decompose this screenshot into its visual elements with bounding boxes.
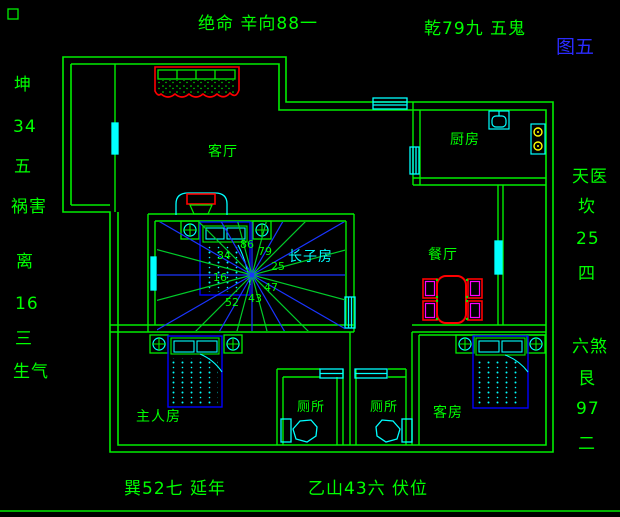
annotation-right-25: 25 xyxy=(576,231,600,248)
room-label-living: 客厅 xyxy=(208,145,238,159)
annotation-right-si: 四 xyxy=(578,266,596,283)
annotation-right-tianyi: 天医 xyxy=(572,169,608,186)
annotation-bottom-left: 巽52七 延年 xyxy=(124,481,226,498)
annotation-left-shengqi: 生气 xyxy=(13,364,49,381)
bed-master xyxy=(168,336,222,407)
flying-star-number: 16 xyxy=(213,272,227,283)
room-label-kitchen: 厨房 xyxy=(450,133,480,147)
flying-star-number: 34 xyxy=(217,250,231,261)
annotation-left-san: 三 xyxy=(15,331,33,348)
bed-guest xyxy=(473,336,528,408)
flying-star-center xyxy=(250,273,255,278)
stove-icon xyxy=(531,124,545,154)
flying-star-number: 47 xyxy=(264,282,278,293)
planter-box xyxy=(155,67,239,97)
annotation-right-kan: 坎 xyxy=(578,199,596,216)
flying-star-number: 86 xyxy=(240,239,254,250)
flying-star-number: 79 xyxy=(258,246,272,257)
room-label-dining: 餐厅 xyxy=(428,248,458,262)
toilet-icon xyxy=(281,419,412,442)
tv-cabinet xyxy=(176,193,227,215)
room-label-eldest-son: 长子房 xyxy=(288,250,333,264)
annotation-right-er: 二 xyxy=(578,436,596,453)
cad-floorplan-canvas: 绝命 辛向88一 乾79九 五鬼 图五 坤 34 五 祸害 离 16 三 生气 … xyxy=(0,0,620,517)
annotation-right-97: 97 xyxy=(576,401,600,418)
figure-label: 图五 xyxy=(556,38,594,57)
flying-star-number: 25 xyxy=(271,261,285,272)
room-label-toilet1: 厕所 xyxy=(297,401,325,414)
annotation-left-16: 16 xyxy=(15,296,39,313)
annotation-left-wu: 五 xyxy=(14,159,32,176)
flying-star-number: 52 xyxy=(225,297,239,308)
annotation-bottom-right: 乙山43六 伏位 xyxy=(308,481,428,498)
flying-star-number: 43 xyxy=(248,293,262,304)
room-label-toilet2: 厕所 xyxy=(370,401,398,414)
annotation-left-huohai: 祸害 xyxy=(11,199,47,216)
sink-icon xyxy=(489,111,509,129)
room-label-guest: 客房 xyxy=(433,406,463,420)
annotation-top-left: 绝命 辛向88一 xyxy=(198,16,318,33)
ucs-marker xyxy=(8,9,18,19)
dining-table xyxy=(423,276,482,323)
room-label-master: 主人房 xyxy=(136,410,181,424)
annotation-right-liusha: 六煞 xyxy=(572,339,608,356)
annotation-left-kun: 坤 xyxy=(14,77,32,94)
annotation-top-right: 乾79九 五鬼 xyxy=(424,21,526,38)
annotation-left-34: 34 xyxy=(13,119,37,136)
annotation-left-li: 离 xyxy=(16,254,34,271)
annotation-right-gen: 艮 xyxy=(578,371,596,388)
